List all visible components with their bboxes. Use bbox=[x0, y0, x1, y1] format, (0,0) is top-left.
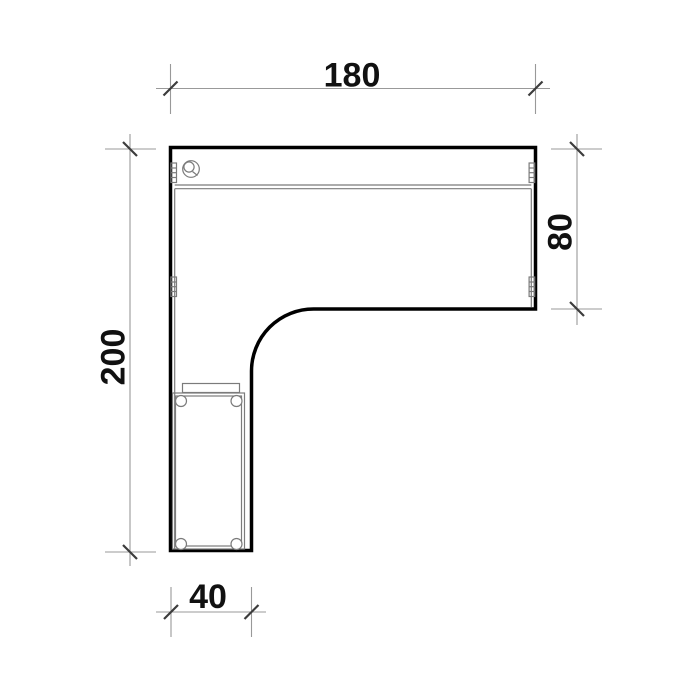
corner-desk-plan-drawing: 180 80 200 40 bbox=[0, 0, 700, 700]
desk-outline bbox=[171, 148, 536, 551]
dimension-label-top: 180 bbox=[324, 57, 381, 95]
dimension-label-left: 200 bbox=[95, 329, 133, 386]
drawing-canvas: 180 80 200 40 bbox=[0, 0, 700, 700]
dimension-label-bottom: 40 bbox=[189, 578, 227, 616]
pedestal-caster-top-left bbox=[176, 396, 187, 407]
dimension-labels-group: 180 80 200 40 bbox=[95, 57, 580, 617]
pedestal-caster-bottom-right bbox=[231, 539, 242, 550]
pedestal-caster-top-right bbox=[231, 396, 242, 407]
desk-outline-group bbox=[171, 148, 536, 551]
dimension-label-right: 80 bbox=[542, 213, 580, 251]
pedestal-caster-bottom-left bbox=[176, 539, 187, 550]
